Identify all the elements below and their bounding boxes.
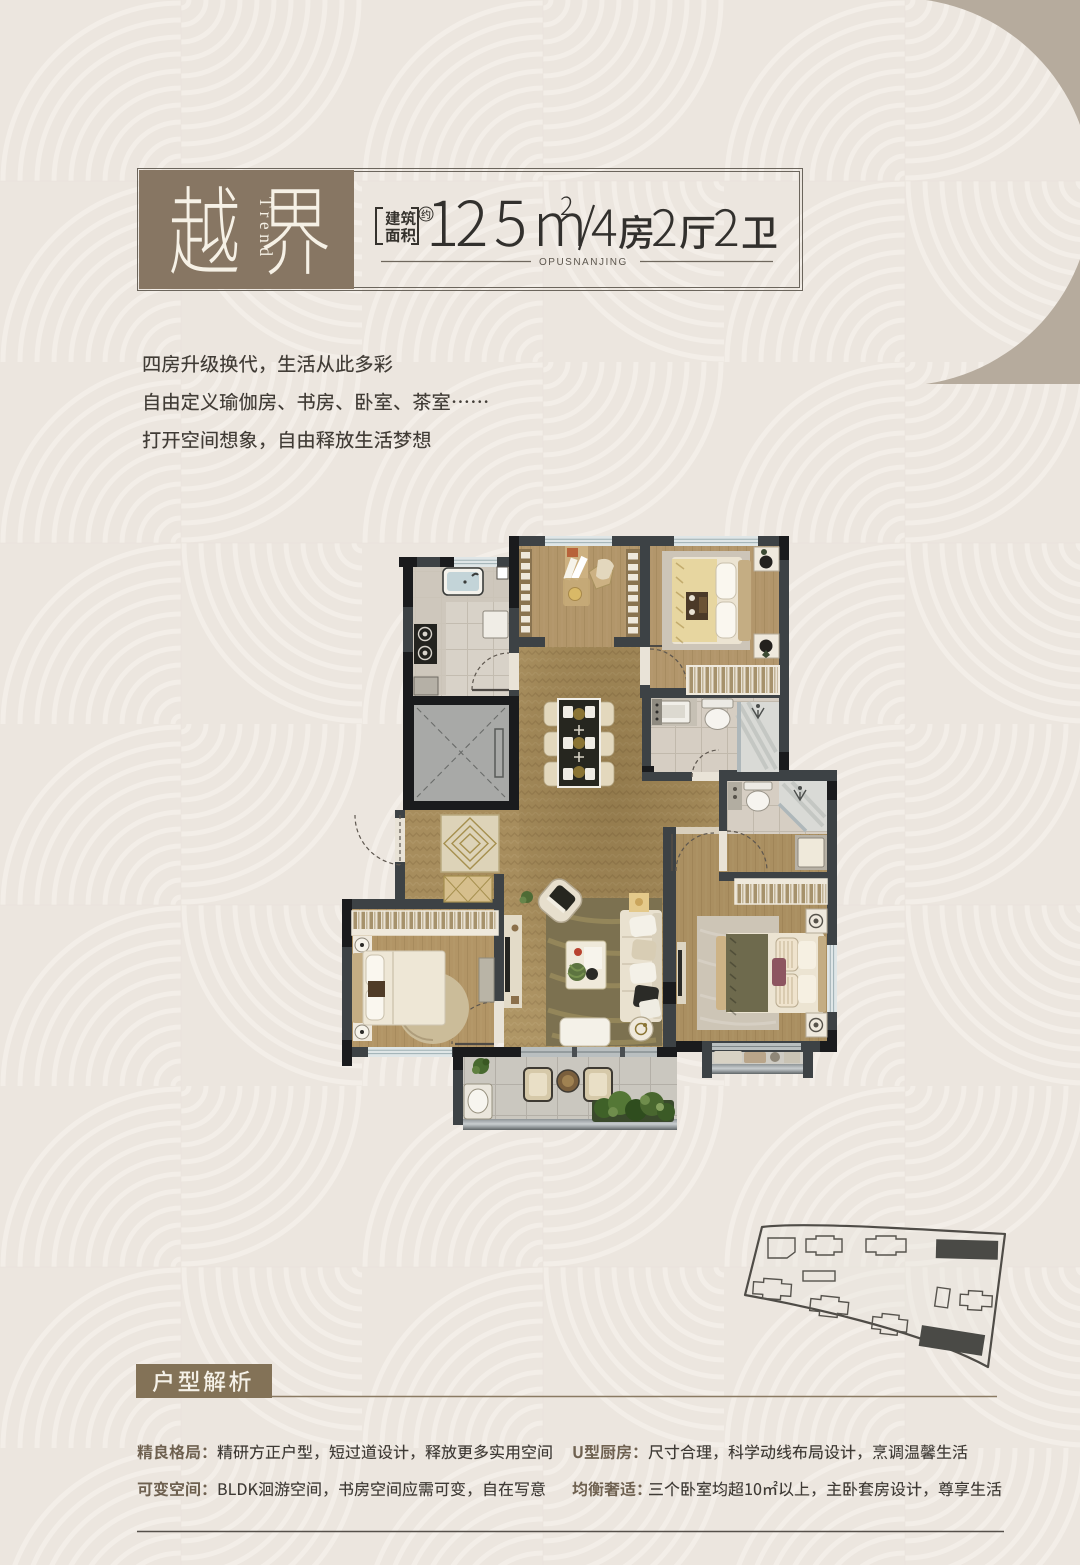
svg-text:OPUSNANJING: OPUSNANJING (539, 257, 628, 268)
svg-text:Trend: Trend (256, 197, 276, 261)
